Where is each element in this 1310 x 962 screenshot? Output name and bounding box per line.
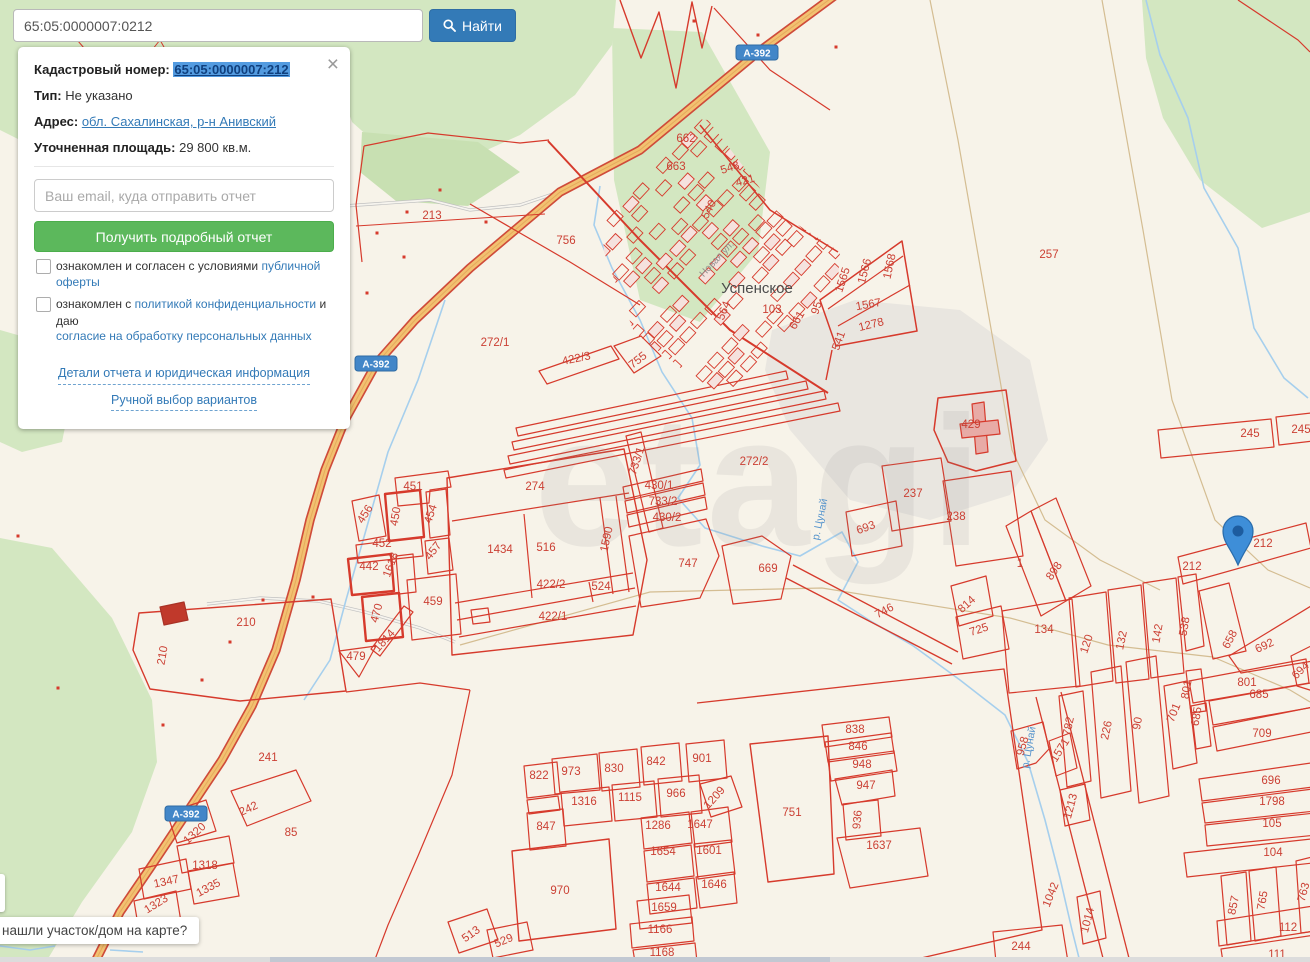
svg-text:1637: 1637 <box>866 840 892 852</box>
map-dot <box>17 535 20 538</box>
cadastral-label: Кадастровый номер: <box>34 62 170 77</box>
svg-text:272/1: 272/1 <box>481 337 510 349</box>
svg-text:104: 104 <box>1263 847 1283 859</box>
svg-text:838: 838 <box>845 724 864 736</box>
svg-text:452: 452 <box>372 538 391 550</box>
svg-text:А-392: А-392 <box>172 810 200 821</box>
svg-text:966: 966 <box>666 788 685 800</box>
offer-checkbox[interactable] <box>36 259 51 274</box>
svg-text:830: 830 <box>604 763 623 775</box>
svg-text:112: 112 <box>1279 922 1297 934</box>
svg-text:747: 747 <box>678 558 697 570</box>
svg-text:1601: 1601 <box>696 845 722 857</box>
svg-text:213: 213 <box>422 210 441 222</box>
svg-text:244: 244 <box>1011 941 1031 953</box>
svg-text:1115: 1115 <box>618 792 642 804</box>
area-label: Уточненная площадь: <box>34 140 175 155</box>
svg-text:430/1: 430/1 <box>645 480 674 492</box>
panel-links: Детали отчета и юридическая информация Р… <box>34 360 334 413</box>
svg-text:822: 822 <box>529 770 548 782</box>
svg-text:1654: 1654 <box>650 846 676 858</box>
svg-text:709: 709 <box>1252 728 1271 740</box>
map-dot <box>757 34 760 37</box>
svg-text:662: 662 <box>676 133 695 145</box>
svg-text:451: 451 <box>403 481 422 493</box>
svg-text:422/1: 422/1 <box>539 611 568 623</box>
svg-text:1: 1 <box>1017 558 1023 570</box>
svg-text:245: 245 <box>1240 428 1259 440</box>
svg-text:1646: 1646 <box>701 879 727 891</box>
map-dot <box>406 211 409 214</box>
type-label: Тип: <box>34 88 62 103</box>
svg-text:134: 134 <box>1034 624 1054 636</box>
svg-text:685: 685 <box>1249 689 1268 701</box>
svg-text:245: 245 <box>1291 424 1310 436</box>
type-row: Тип: Не указано <box>34 88 334 103</box>
address-label: Адрес: <box>34 114 78 129</box>
road-badge: А-392 <box>165 806 207 821</box>
map-dot <box>262 599 265 602</box>
svg-text:238: 238 <box>946 511 965 523</box>
map-dot <box>403 256 406 259</box>
svg-text:1798: 1798 <box>1259 796 1285 808</box>
edge-control-partial[interactable] <box>0 874 5 912</box>
svg-text:1166: 1166 <box>648 924 673 936</box>
map-dot <box>162 724 165 727</box>
svg-text:А-392: А-392 <box>362 360 390 371</box>
map-dot <box>485 221 488 224</box>
map-dot <box>229 641 232 644</box>
privacy-checkbox[interactable] <box>36 297 51 312</box>
svg-text:973: 973 <box>561 766 580 778</box>
svg-text:516: 516 <box>536 542 555 554</box>
map-dot <box>439 189 442 192</box>
road-badge: А-392 <box>736 45 778 60</box>
horizontal-scrollbar[interactable] <box>0 957 1310 962</box>
map-dot <box>693 20 696 23</box>
svg-text:1659: 1659 <box>651 902 677 914</box>
svg-text:847: 847 <box>536 821 555 833</box>
search-button[interactable]: Найти <box>429 9 516 42</box>
report-details-link[interactable]: Детали отчета и юридическая информация <box>58 363 310 385</box>
search-bar: Найти <box>13 9 516 42</box>
cadastral-number-link[interactable]: 65:05:0000007:212 <box>173 62 289 77</box>
map-dot <box>366 292 369 295</box>
close-icon[interactable]: × <box>327 54 339 75</box>
svg-text:1316: 1316 <box>571 796 597 808</box>
svg-text:970: 970 <box>550 885 569 897</box>
svg-text:948: 948 <box>852 759 871 771</box>
svg-text:429: 429 <box>961 419 980 431</box>
svg-text:459: 459 <box>423 596 442 608</box>
svg-text:241: 241 <box>258 752 277 764</box>
svg-text:756: 756 <box>556 235 575 247</box>
svg-text:430/2: 430/2 <box>653 512 682 524</box>
svg-text:1434: 1434 <box>487 544 513 556</box>
svg-text:936: 936 <box>851 810 865 830</box>
svg-text:90: 90 <box>1131 716 1145 731</box>
area-value: 29 800 кв.м. <box>179 140 251 155</box>
personal-data-link-row: согласие на обработку персональных данны… <box>56 329 334 345</box>
svg-text:479: 479 <box>346 651 365 663</box>
address-link[interactable]: обл. Сахалинская, р-н Анивский <box>82 114 276 129</box>
svg-text:105: 105 <box>1262 818 1281 830</box>
search-input[interactable] <box>13 9 423 42</box>
personal-data-link[interactable]: согласие на обработку персональных данны… <box>56 329 312 343</box>
svg-text:846: 846 <box>848 741 867 753</box>
svg-text:842: 842 <box>646 756 665 768</box>
svg-text:257: 257 <box>1039 249 1058 261</box>
privacy-policy-link[interactable]: политикой конфиденциальности <box>135 297 316 311</box>
svg-text:1647: 1647 <box>687 819 713 831</box>
svg-text:274: 274 <box>525 481 545 493</box>
svg-text:1286: 1286 <box>645 820 671 832</box>
svg-text:422/2: 422/2 <box>537 579 566 591</box>
manual-select-link[interactable]: Ручной выбор вариантов <box>111 390 257 412</box>
svg-text:103: 103 <box>762 304 781 316</box>
privacy-consent-text: ознакомлен с политикой конфиденциальност… <box>56 296 334 328</box>
svg-text:1644: 1644 <box>655 882 681 894</box>
privacy-consent-row: ознакомлен с политикой конфиденциальност… <box>34 296 334 328</box>
search-button-label: Найти <box>462 18 502 34</box>
map-dot <box>57 687 60 690</box>
type-value: Не указано <box>65 88 132 103</box>
address-row: Адрес: обл. Сахалинская, р-н Анивский <box>34 114 334 129</box>
area-row: Уточненная площадь: 29 800 кв.м. <box>34 140 334 155</box>
map-dot <box>835 46 838 49</box>
svg-text:801: 801 <box>1237 677 1256 689</box>
parcel-info-panel: × Кадастровый номер: 65:05:0000007:212 Т… <box>18 47 350 429</box>
svg-text:524: 524 <box>591 581 611 593</box>
svg-text:442: 442 <box>359 561 378 573</box>
search-icon <box>443 19 456 32</box>
svg-text:237: 237 <box>903 488 922 500</box>
svg-text:696: 696 <box>1261 775 1280 787</box>
cadastral-number-row: Кадастровый номер: 65:05:0000007:212 <box>34 62 334 77</box>
watermark: etagi <box>534 379 986 585</box>
divider <box>34 166 334 167</box>
find-parcel-tooltip[interactable]: нашли участок/дом на карте? <box>0 917 199 944</box>
svg-text:Успенское: Успенское <box>721 280 793 297</box>
get-report-button[interactable]: Получить подробный отчет <box>34 221 334 252</box>
offer-consent-text: ознакомлен и согласен с условиями публич… <box>56 258 334 290</box>
svg-text:901: 901 <box>692 753 711 765</box>
svg-text:947: 947 <box>856 780 875 792</box>
svg-text:663: 663 <box>666 161 685 173</box>
scrollbar-thumb[interactable] <box>270 957 830 962</box>
svg-text:272/2: 272/2 <box>740 456 769 468</box>
svg-text:733/2: 733/2 <box>649 496 678 508</box>
svg-text:212: 212 <box>1253 538 1272 550</box>
map-dot <box>312 596 315 599</box>
svg-text:669: 669 <box>758 563 777 575</box>
email-field[interactable] <box>34 179 334 212</box>
offer-consent-row: ознакомлен и согласен с условиями публич… <box>34 258 334 290</box>
svg-text:212: 212 <box>1182 561 1201 573</box>
map-dot <box>201 679 204 682</box>
svg-text:А-392: А-392 <box>743 49 771 60</box>
svg-text:1318: 1318 <box>192 860 218 872</box>
map-dot <box>376 232 379 235</box>
svg-text:85: 85 <box>285 827 298 839</box>
svg-text:210: 210 <box>236 617 255 629</box>
svg-text:751: 751 <box>782 807 801 819</box>
road-badge: А-392 <box>355 356 397 371</box>
